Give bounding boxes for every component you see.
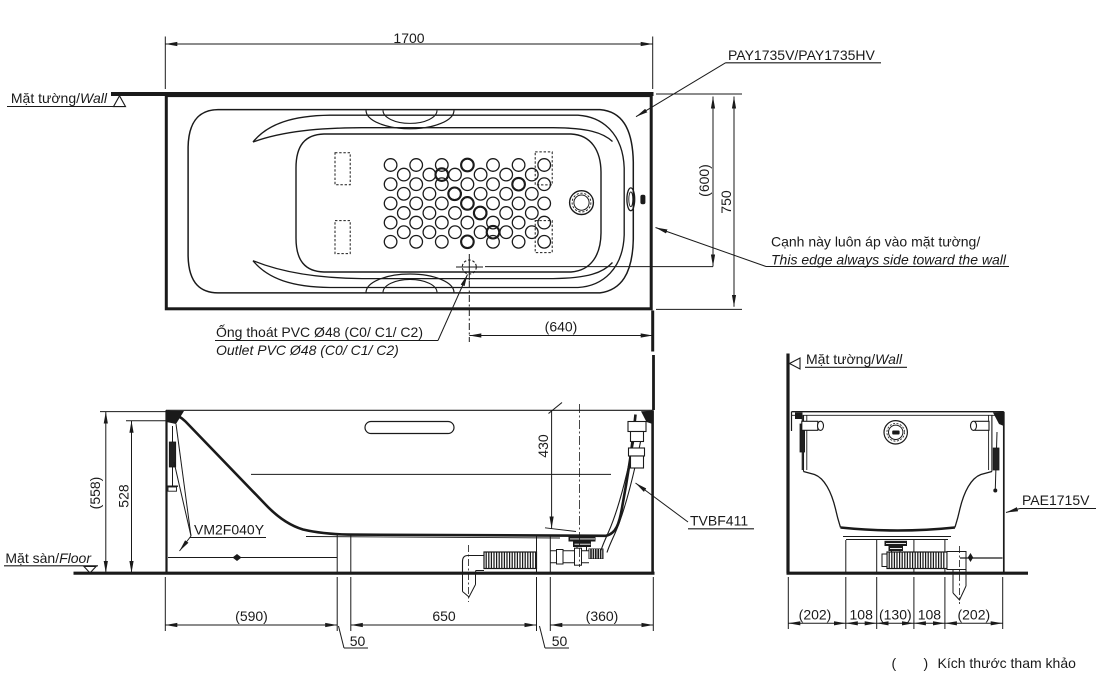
svg-text:Outlet PVC Ø48 (C0/ C1/ C2): Outlet PVC Ø48 (C0/ C1/ C2) bbox=[216, 342, 399, 358]
svg-text:Mặt sàn/Floor: Mặt sàn/Floor bbox=[5, 550, 92, 566]
svg-text:(360): (360) bbox=[586, 608, 619, 624]
svg-text:50: 50 bbox=[350, 633, 366, 649]
svg-text:Kích thước tham khảo: Kích thước tham khảo bbox=[938, 655, 1077, 671]
svg-text:Mặt tường/Wall: Mặt tường/Wall bbox=[806, 351, 903, 367]
svg-text:VM2F040Y: VM2F040Y bbox=[194, 522, 265, 538]
svg-text:PAE1715V: PAE1715V bbox=[1022, 492, 1090, 508]
svg-text:(640): (640) bbox=[545, 319, 578, 335]
svg-text:(202): (202) bbox=[957, 607, 990, 623]
svg-text:528: 528 bbox=[116, 484, 132, 508]
svg-text:): ) bbox=[924, 655, 929, 671]
svg-text:(130): (130) bbox=[879, 607, 912, 623]
svg-text:(: ( bbox=[892, 655, 897, 671]
svg-text:Mặt tường/Wall: Mặt tường/Wall bbox=[11, 90, 108, 106]
svg-text:650: 650 bbox=[432, 608, 456, 624]
svg-text:750: 750 bbox=[718, 190, 734, 214]
svg-text:108: 108 bbox=[850, 607, 874, 623]
svg-text:Ống thoát PVC Ø48 (C0/ C1/ C2): Ống thoát PVC Ø48 (C0/ C1/ C2) bbox=[216, 323, 423, 340]
svg-text:1700: 1700 bbox=[393, 30, 424, 46]
svg-text:Cạnh này luôn áp vào mặt tường: Cạnh này luôn áp vào mặt tường/ bbox=[771, 234, 980, 250]
svg-text:(558): (558) bbox=[87, 477, 103, 510]
svg-text:(202): (202) bbox=[799, 607, 832, 623]
svg-text:(590): (590) bbox=[235, 608, 268, 624]
svg-text:(600): (600) bbox=[696, 164, 712, 197]
svg-text:430: 430 bbox=[535, 434, 551, 458]
svg-text:This edge always side toward t: This edge always side toward the wall bbox=[771, 252, 1007, 268]
svg-text:PAY1735V/PAY1735HV: PAY1735V/PAY1735HV bbox=[728, 47, 875, 63]
svg-text:TVBF411: TVBF411 bbox=[690, 513, 748, 529]
svg-text:50: 50 bbox=[552, 633, 568, 649]
svg-text:108: 108 bbox=[918, 607, 942, 623]
